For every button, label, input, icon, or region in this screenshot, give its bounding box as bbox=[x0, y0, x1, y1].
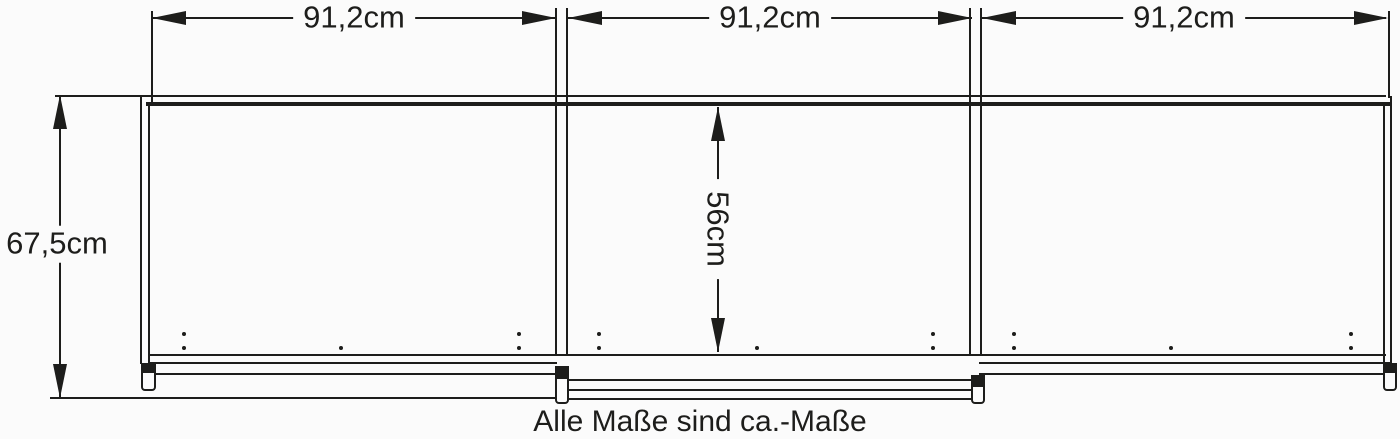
arrow-down-icon bbox=[711, 318, 725, 352]
front-rail-bottom bbox=[563, 398, 977, 400]
height-dim-bottom-extension bbox=[50, 397, 557, 399]
back-rail-left-top bbox=[148, 362, 557, 364]
door-roller-foot bbox=[971, 375, 985, 404]
back-rail-right-top bbox=[979, 362, 1392, 364]
drill-hole-dot bbox=[517, 346, 521, 350]
drill-hole-dot bbox=[931, 346, 935, 350]
arrow-left-icon bbox=[152, 11, 186, 25]
roller-icon bbox=[1384, 364, 1396, 373]
cabinet-right-edge-inner bbox=[1383, 104, 1385, 364]
cabinet-top-edge bbox=[55, 95, 1386, 97]
arrow-left-icon bbox=[568, 11, 602, 25]
drill-hole-dot bbox=[182, 332, 186, 336]
roller-icon bbox=[142, 364, 155, 373]
drill-hole-dot bbox=[1349, 346, 1353, 350]
arrow-right-icon bbox=[522, 11, 556, 25]
roller-icon bbox=[556, 367, 568, 379]
drill-hole-dot bbox=[597, 332, 601, 336]
front-rail-top bbox=[563, 379, 977, 381]
arrow-right-icon bbox=[1354, 11, 1388, 25]
door-divider-1-right bbox=[566, 8, 568, 356]
arrow-up-icon bbox=[711, 107, 725, 141]
width-dim-3-label: 91,2cm bbox=[1123, 0, 1245, 36]
cabinet-right-edge-outer bbox=[1390, 96, 1392, 364]
arrow-left-icon bbox=[982, 11, 1016, 25]
cabinet-left-edge-inner bbox=[148, 104, 150, 366]
door-divider-2-left bbox=[969, 8, 971, 356]
arrow-up-icon bbox=[53, 95, 67, 129]
cabinet-left-edge-outer bbox=[140, 95, 142, 364]
front-rail-middle bbox=[563, 389, 977, 391]
drill-hole-dot bbox=[1012, 346, 1016, 350]
drill-hole-dot bbox=[339, 346, 343, 350]
width-dim-2-label: 91,2cm bbox=[709, 0, 831, 36]
arrow-right-icon bbox=[938, 11, 972, 25]
drill-hole-dot bbox=[931, 332, 935, 336]
height-dim-label: 67,5cm bbox=[0, 226, 118, 263]
arrow-down-icon bbox=[53, 364, 67, 398]
footnote-text: Alle Maße sind ca.-Maße bbox=[533, 405, 866, 438]
cabinet-bottom-edge bbox=[148, 354, 1386, 356]
width-dim-3-extension-line bbox=[1388, 11, 1390, 98]
cabinet-top-front-edge bbox=[146, 102, 1392, 106]
inner-height-dim-label: 56cm bbox=[699, 179, 736, 279]
dimension-diagram: 91,2cm 91,2cm 91,2cm 67,5cm 56cm bbox=[0, 0, 1400, 439]
door-divider-1-left bbox=[555, 8, 557, 356]
back-rail-right-bottom bbox=[979, 373, 1392, 375]
door-roller-foot bbox=[1383, 363, 1397, 391]
drill-hole-dot bbox=[1349, 332, 1353, 336]
drill-hole-dot bbox=[597, 346, 601, 350]
drill-hole-dot bbox=[1012, 332, 1016, 336]
width-dim-1-label: 91,2cm bbox=[293, 0, 415, 36]
door-roller-foot bbox=[141, 363, 156, 391]
back-rail-left-bottom bbox=[148, 373, 557, 375]
drill-hole-dot bbox=[1169, 346, 1173, 350]
drill-hole-dot bbox=[517, 332, 521, 336]
width-dim-1-extension-line bbox=[151, 11, 153, 103]
door-roller-foot bbox=[555, 366, 569, 404]
roller-icon bbox=[972, 376, 984, 387]
door-divider-2-right bbox=[980, 8, 982, 356]
drill-hole-dot bbox=[182, 346, 186, 350]
drill-hole-dot bbox=[755, 346, 759, 350]
